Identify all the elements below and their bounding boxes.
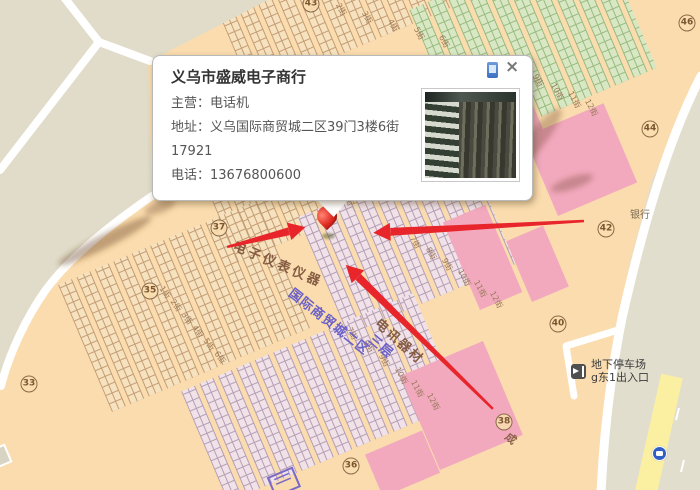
gate-marker: 40 bbox=[550, 316, 567, 333]
shop-phone-line: 电话：13676800600 bbox=[171, 164, 417, 188]
gate-marker: 36 bbox=[343, 458, 360, 475]
parking-entrance-icon bbox=[571, 364, 586, 379]
close-icon[interactable]: × bbox=[505, 57, 519, 77]
street-label: 银行 bbox=[630, 211, 650, 221]
gate-marker: 46 bbox=[679, 15, 696, 32]
shop-business-line: 主营：电话机 bbox=[171, 92, 417, 116]
gate-marker: 42 bbox=[598, 221, 615, 238]
gate-marker: 35 bbox=[142, 283, 159, 300]
bus-stop-icon bbox=[652, 446, 667, 461]
gate-marker: 37 bbox=[211, 220, 228, 237]
parking-label-line1: 地下停车场 bbox=[591, 358, 646, 371]
shop-title: 义乌市盛威电子商行 bbox=[171, 66, 306, 87]
map-canvas[interactable]: 2街3街4街5街6街9街10街11街12街6街7街8街9街10街11街12街1街… bbox=[0, 0, 700, 490]
shop-address-line: 地址：义乌国际商贸城二区39门3楼6街17921 bbox=[171, 116, 417, 164]
shop-photo-thumbnail[interactable] bbox=[421, 88, 520, 182]
pin-shadow bbox=[322, 233, 335, 239]
gate-marker: 44 bbox=[642, 121, 659, 138]
phone-icon[interactable] bbox=[487, 62, 498, 78]
gate-marker: 33 bbox=[21, 376, 38, 393]
info-window: 义乌市盛威电子商行 主营：电话机 地址：义乌国际商贸城二区39门3楼6街1792… bbox=[152, 55, 533, 201]
shop-details: 主营：电话机 地址：义乌国际商贸城二区39门3楼6街17921 电话：13676… bbox=[171, 92, 417, 188]
parking-label-line2: g东1出入口 bbox=[591, 371, 649, 384]
gate-marker: 38 bbox=[496, 414, 513, 431]
shop-photo bbox=[425, 92, 516, 178]
